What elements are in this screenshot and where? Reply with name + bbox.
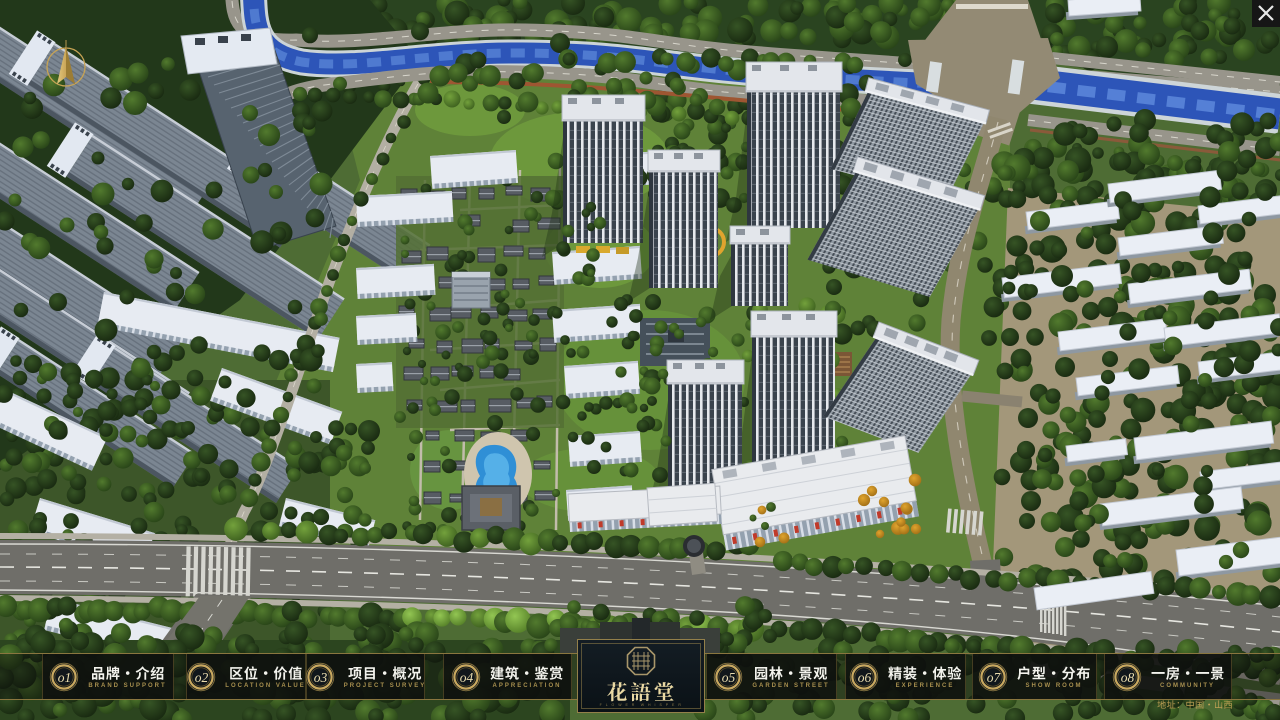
svg-text:o6: o6 [858,670,872,685]
svg-text:o1: o1 [58,670,72,685]
svg-text:o5: o5 [722,670,736,685]
svg-text:o7: o7 [987,670,1002,685]
svg-text:o2: o2 [195,670,209,685]
svg-text:o3: o3 [313,670,327,685]
svg-text:o8: o8 [1120,670,1134,685]
svg-text:o4: o4 [460,670,474,685]
